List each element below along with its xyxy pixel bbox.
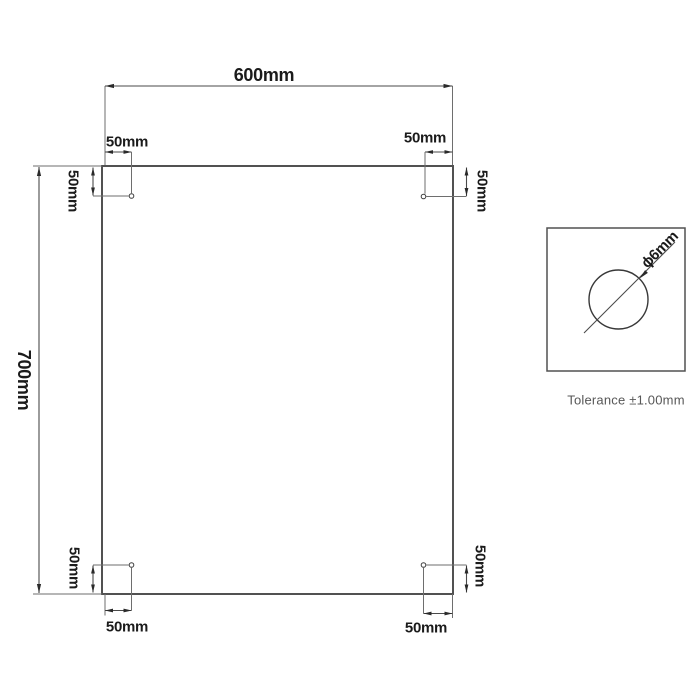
offset-dimension-bottom-left: 50mm 50mm <box>66 547 149 636</box>
width-dimension-label: 600mm <box>234 65 295 85</box>
detail-hole-circle <box>589 270 648 329</box>
hole-top-right <box>421 194 426 199</box>
offset-label-bottom-right-h: 50mm <box>405 620 447 637</box>
hole-detail-view: ϕ6mm <box>547 228 685 371</box>
offset-label-top-left-h: 50mm <box>106 134 148 151</box>
offset-dimension-top-right: 50mm 50mm <box>404 130 491 213</box>
offset-label-top-right-h: 50mm <box>404 130 446 147</box>
hole-diameter-label: ϕ6mm <box>638 228 682 272</box>
height-extension-lines <box>33 166 102 594</box>
tolerance-note: Tolerance ±1.00mm <box>567 393 684 408</box>
hole-bottom-left <box>129 563 134 568</box>
offset-label-bottom-right-v: 50mm <box>472 545 489 587</box>
offset-label-top-left-v: 50mm <box>65 170 82 212</box>
panel-outline <box>102 166 453 594</box>
offset-label-top-right-v: 50mm <box>474 170 491 212</box>
offset-dimension-top-left: 50mm 50mm <box>65 134 149 213</box>
hole-top-left <box>129 194 134 199</box>
offset-label-bottom-left-h: 50mm <box>106 619 148 636</box>
offset-dimension-bottom-right: 50mm 50mm <box>405 545 489 637</box>
height-dimension-label: 700mm <box>14 350 34 411</box>
width-dimension: 600mm <box>105 65 453 165</box>
height-dimension: 700mm <box>14 167 41 593</box>
diameter-leader-arrow <box>639 270 648 279</box>
technical-drawing-page: 600mm 700mm 50mm 50mm <box>0 0 700 700</box>
hole-bottom-right <box>421 563 426 568</box>
drawing-canvas: 600mm 700mm 50mm 50mm <box>0 0 700 700</box>
offset-label-bottom-left-v: 50mm <box>66 547 83 589</box>
